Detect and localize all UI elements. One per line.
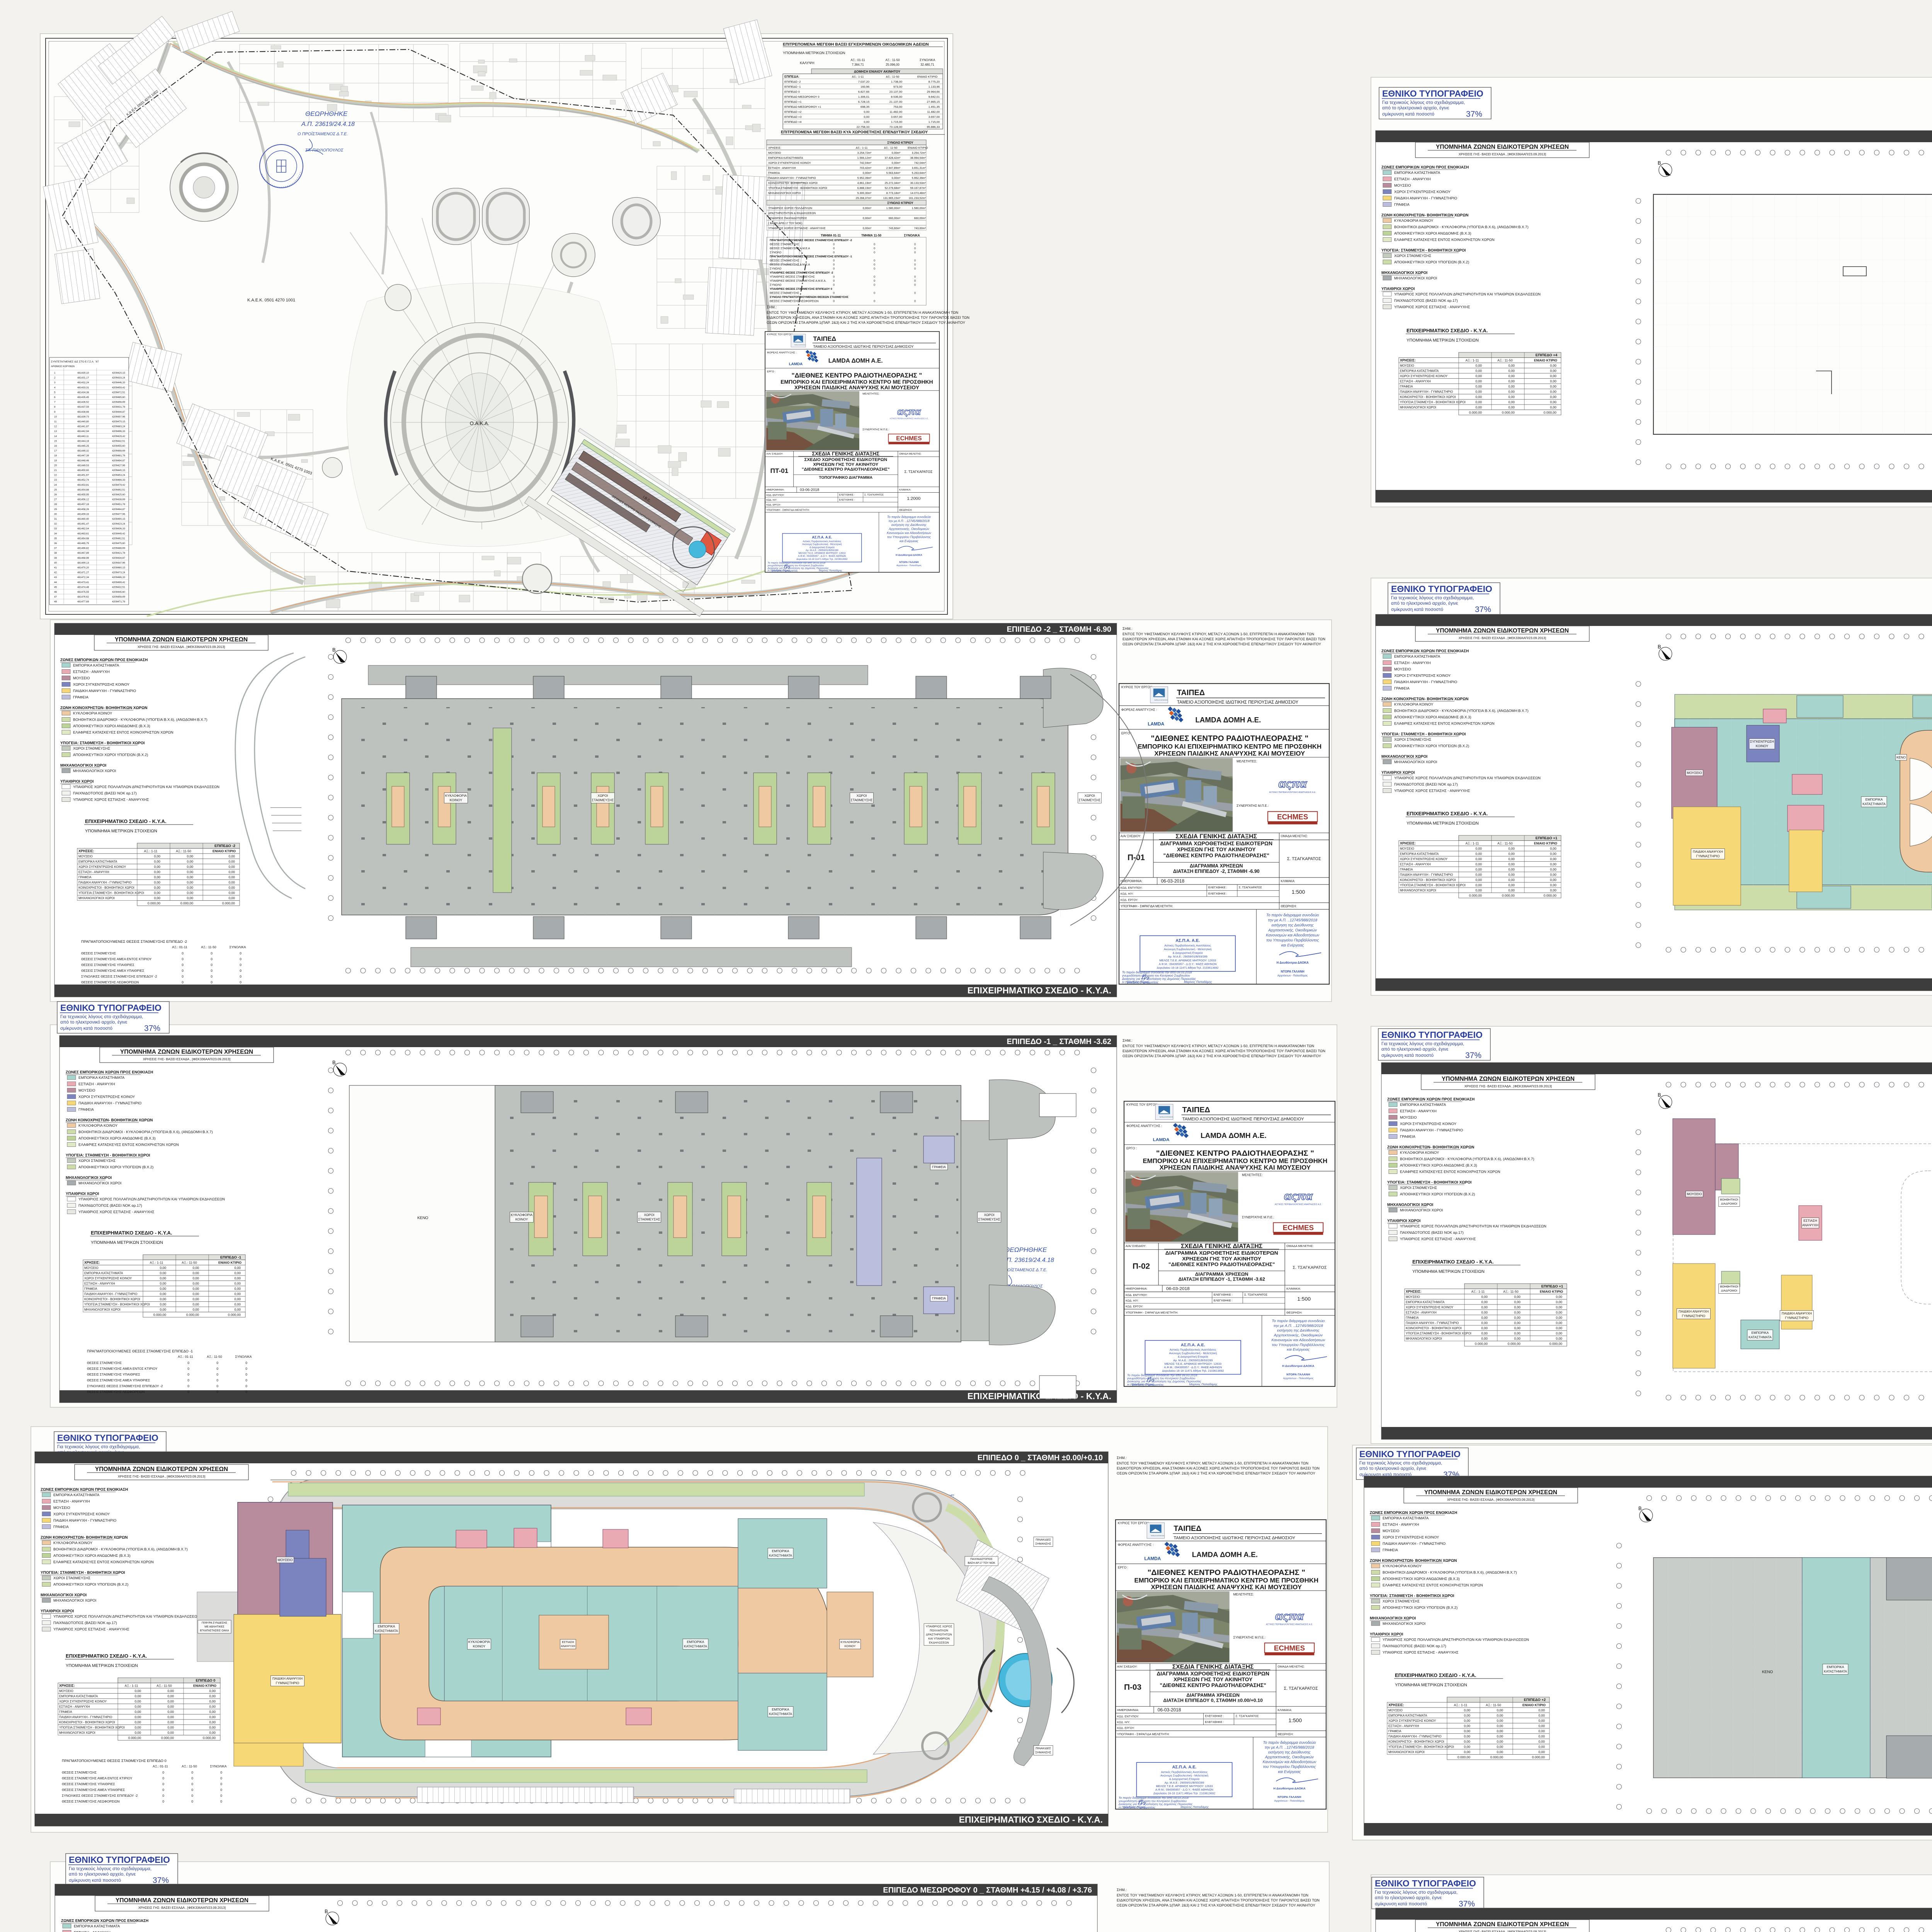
svg-text:ΣΥΝΟΛΙΚΑ: ΣΥΝΟΛΙΚΑ	[230, 945, 246, 949]
svg-text:την με Α.Π. ..12745/988/2018: την με Α.Π. ..12745/988/2018	[1274, 1324, 1323, 1328]
svg-text:ΝΤΟΡΑ ΓΑΛΑΝΗ: ΝΤΟΡΑ ΓΑΛΑΝΗ	[1286, 1373, 1310, 1376]
svg-text:ΑΞ.: 1-11: ΑΞ.: 1-11	[1466, 842, 1479, 845]
svg-text:ΥΠΑΙΘΡΙΟΙ ΧΩΡΟΙ: ΥΠΑΙΘΡΙΟΙ ΧΩΡΟΙ	[60, 780, 94, 784]
svg-text:ΜΟΥΣΕΙΟ: ΜΟΥΣΕΙΟ	[1400, 364, 1414, 367]
svg-text:ΓΡΑΦΕΙΑ: ΓΡΑΦΕΙΑ	[1388, 1730, 1401, 1733]
svg-text:0: 0	[182, 980, 184, 984]
svg-text:ΘΕΣΕΙΣ ΣΤΑΘΜΕΥΣΗΣ ΥΠΑΙΘΡΙΕΣ: ΘΕΣΕΙΣ ΣΤΑΘΜΕΥΣΗΣ ΥΠΑΙΘΡΙΕΣ	[62, 1782, 115, 1786]
svg-text:"ΔΙΕΘΝΕΣ ΚΕΝΤΡΟ ΡΑΔΙΟΤΗΛΕΟΡΑΣΗ: "ΔΙΕΘΝΕΣ ΚΕΝΤΡΟ ΡΑΔΙΟΤΗΛΕΟΡΑΣΗΣ"	[1160, 1682, 1266, 1688]
svg-text:0.000,00: 0.000,00	[1502, 411, 1515, 415]
svg-text:8.773,18m²: 8.773,18m²	[886, 191, 901, 195]
svg-text:ΠΡΑΓΜΑΤΟΠΟΙΟΥΜΕΝΕΣ ΘΕΣΕΙΣ ΣΤΑΘ: ΠΡΑΓΜΑΤΟΠΟΙΟΥΜΕΝΕΣ ΘΕΣΕΙΣ ΣΤΑΘΜΕΥΣΗΣ ΕΠΙ…	[87, 1349, 193, 1354]
svg-text:5.300,30m²: 5.300,30m²	[857, 191, 872, 195]
svg-text:σμίκρυνση κατά ποσοστό: σμίκρυνση κατά ποσοστό	[1381, 1053, 1434, 1058]
svg-text:0.000,00: 0.000,00	[1469, 894, 1482, 898]
svg-text:ΕΜΠΟΡΙΚΑ: ΕΜΠΟΡΙΚΑ	[1827, 1665, 1844, 1669]
svg-text:4209496,33: 4209496,33	[112, 430, 125, 433]
svg-text:ΚΥΚΛΟΦΟΡΙΑ ΚΟΙΝΟΥ: ΚΥΚΛΟΦΟΡΙΑ ΚΟΙΝΟΥ	[78, 1124, 118, 1128]
svg-text:481435,45: 481435,45	[77, 396, 89, 399]
svg-text:0.000,00: 0.000,00	[228, 1313, 241, 1317]
svg-text:ΓΡΑΦΕΙΑ: ΓΡΑΦΕΙΑ	[932, 1165, 946, 1169]
svg-text:481476,62: 481476,62	[77, 596, 89, 599]
svg-text:ΕΠΙΤΡΕΠΟΜΕΝΑ ΜΕΓΕΘΗ ΒΑΣΕΙ ΚΥΑ: ΕΠΙΤΡΕΠΟΜΕΝΑ ΜΕΓΕΘΗ ΒΑΣΕΙ ΚΥΑ ΧΩΡΟΘΕΤΗΣΗ…	[781, 130, 928, 134]
svg-text:Α.Π. 23619/24.4.18: Α.Π. 23619/24.4.18	[1000, 1257, 1054, 1264]
svg-text:4209421,78: 4209421,78	[112, 552, 125, 554]
svg-text:ΧΩΡΟΙ ΣΥΓΚΕΝΤΡΩΣΗΣ ΚΟΙΝΟΥ: ΧΩΡΟΙ ΣΥΓΚΕΝΤΡΩΣΗΣ ΚΟΙΝΟΥ	[78, 865, 126, 869]
svg-text:Σ. ΤΣΑΓΚΑΡΑΤΟΣ: Σ. ΤΣΑΓΚΑΡΑΤΟΣ	[1239, 886, 1262, 889]
svg-text:ΚΥΚΛΟΦΟΡΙΑ: ΚΥΚΛΟΦΟΡΙΑ	[445, 794, 467, 798]
svg-text:ΑΞ.: 11-50: ΑΞ.: 11-50	[1497, 359, 1513, 362]
svg-text:ΕΜΠΟΡΙΚΑ ΚΑΤΑΣΤΗΜΑΤΑ: ΕΜΠΟΡΙΚΑ ΚΑΤΑΣΤΗΜΑΤΑ	[84, 1272, 123, 1275]
svg-text:ΠΑΙΧΝΙΔΟΤΟΠΟΣ (ΒΑΣΕΙ ΝΟΚ αρ.17: ΠΑΙΧΝΙΔΟΤΟΠΟΣ (ΒΑΣΕΙ ΝΟΚ αρ.17)	[73, 791, 137, 796]
svg-text:LAMDA ΔΟΜΗ Α.Ε.: LAMDA ΔΟΜΗ Α.Ε.	[1195, 716, 1261, 724]
svg-text:ΥΠΑΙΘΡΙΟΙ ΧΩΡΟΙ: ΥΠΑΙΘΡΙΟΙ ΧΩΡΟΙ	[41, 1609, 74, 1614]
svg-text:ΚΥΡΙΟΣ ΤΟΥ ΕΡΓΟΥ :: ΚΥΡΙΟΣ ΤΟΥ ΕΡΓΟΥ :	[1126, 1103, 1159, 1107]
svg-text:0,00: 0,00	[167, 1694, 174, 1698]
svg-text:ΚΟΙΝΟΧΡΗΣΤΟΙ - ΒΟΗΘΗΤΙΚΟΙ ΧΩΡΟ: ΚΟΙΝΟΧΡΗΣΤΟΙ - ΒΟΗΘΗΤΙΚΟΙ ΧΩΡΟΙ	[78, 886, 134, 889]
svg-text:37%: 37%	[1466, 110, 1482, 119]
svg-text:ΧΩΡΟΙ: ΧΩΡΟΙ	[984, 1213, 995, 1217]
svg-text:ΓΥΜΝΑΣΤΗΡΙΟ: ΓΥΜΝΑΣΤΗΡΙΟ	[1696, 854, 1720, 858]
svg-text:την με Α.Π. ..12745/988/2018: την με Α.Π. ..12745/988/2018	[1265, 1746, 1314, 1750]
svg-text:ΟΜΑΔΑ ΜΕΛΕΤΗΣ:: ΟΜΑΔΑ ΜΕΛΕΤΗΣ:	[1286, 1244, 1313, 1248]
svg-text:0,00: 0,00	[1475, 374, 1482, 378]
svg-text:481451,67: 481451,67	[77, 474, 89, 477]
svg-text:Α.Π. 23619/24.4.18: Α.Π. 23619/24.4.18	[301, 121, 355, 128]
svg-text:0,00: 0,00	[1550, 857, 1556, 861]
svg-text:ΕΝΙΑΙΟ ΚΤΙΡΙΟ: ΕΝΙΑΙΟ ΚΤΙΡΙΟ	[1534, 842, 1557, 845]
svg-text:ΑΠΟΘΗΚΕΥΤΙΚΟΙ ΧΩΡΟΙ ΑΝΩΔΟΜΗΣ (: ΑΠΟΘΗΚΕΥΤΙΚΟΙ ΧΩΡΟΙ ΑΝΩΔΟΜΗΣ (Β.Χ.3)	[73, 724, 150, 728]
svg-text:0: 0	[191, 1770, 193, 1774]
svg-text:0: 0	[874, 267, 875, 270]
svg-text:0,00: 0,00	[1550, 379, 1556, 383]
svg-text:0: 0	[914, 251, 916, 254]
svg-text:ΜΗΧΑΝΟΛΟΓΙΚΟΙ ΧΩΡΟΙ: ΜΗΧΑΝΟΛΟΓΙΚΟΙ ΧΩΡΟΙ	[1406, 1337, 1442, 1340]
svg-text:και Ενέργειας: και Ενέργειας	[900, 539, 918, 543]
svg-text:ΑΣ.Π.Α. Α.Ε.: ΑΣ.Π.Α. Α.Ε.	[1181, 1343, 1205, 1347]
svg-text:27: 27	[54, 498, 57, 501]
svg-text:ΕΜΠΟΡΙΚΑ ΚΑΤΑΣΤΗΜΑΤΑ: ΕΜΠΟΡΙΚΑ ΚΑΤΑΣΤΗΜΑΤΑ	[1394, 655, 1440, 659]
svg-text:ΜΟΥΣΕΙΟ: ΜΟΥΣΕΙΟ	[78, 1088, 95, 1093]
svg-text:ΕΜΠΟΡΙΚΟ ΚΑΙ ΕΠΙΧΕΙΡΗΜΑΤΙΚΟ ΚΕ: ΕΜΠΟΡΙΚΟ ΚΑΙ ΕΠΙΧΕΙΡΗΜΑΤΙΚΟ ΚΕΝΤΡΟ ΜΕ ΠΡ…	[1134, 1577, 1319, 1584]
svg-text:0,00: 0,00	[1475, 867, 1482, 871]
svg-text:ΚΥΚΛΟΦΟΡΙΑ: ΚΥΚΛΟΦΟΡΙΑ	[468, 1640, 490, 1644]
svg-text:ΧΡΗΣΕΙΣ ΓΗΣ- ΒΑΣΕΙ ΕΣΧΑΔΑ , [Φ: ΧΡΗΣΕΙΣ ΓΗΣ- ΒΑΣΕΙ ΕΣΧΑΔΑ , [ΦΕΚ336ΑΑΠ/2…	[1464, 1084, 1552, 1088]
svg-text:481461,47: 481461,47	[77, 523, 89, 526]
svg-text:0,00: 0,00	[1508, 395, 1515, 399]
svg-text:ΜΟΥΣΕΙΟ: ΜΟΥΣΕΙΟ	[1394, 667, 1411, 672]
svg-text:ΜΟΥΣΕΙΟ: ΜΟΥΣΕΙΟ	[1687, 771, 1702, 775]
svg-text:ΚΟΙΝΟΧΡΗΣΤΟΙ - ΒΟΗΘΗΤΙΚΟΙ ΧΩΡΟ: ΚΟΙΝΟΧΡΗΣΤΟΙ - ΒΟΗΘΗΤΙΚΟΙ ΧΩΡΟΙ	[1406, 1327, 1462, 1330]
svg-text:481467,89: 481467,89	[77, 552, 89, 554]
svg-text:ΚΥΚΛΟΦΟΡΙΑ: ΚΥΚΛΟΦΟΡΙΑ	[511, 1213, 533, 1217]
svg-text:ΜΟΥΣΕΙΟ: ΜΟΥΣΕΙΟ	[73, 676, 90, 680]
svg-text:ΕΛΕΓΧΘΗΚΕ :: ΕΛΕΓΧΘΗΚΕ :	[839, 498, 855, 501]
svg-text:ΕΝΙΑΙΟ ΚΤΙΡΙΟ: ΕΝΙΑΙΟ ΚΤΙΡΙΟ	[218, 1261, 241, 1265]
svg-text:0,00: 0,00	[192, 1282, 199, 1286]
svg-text:ΚΛΙΜΑΚΑ:: ΚΛΙΜΑΚΑ:	[1277, 1708, 1292, 1712]
svg-text:0,00: 0,00	[1508, 862, 1515, 866]
svg-text:ΕΠΙΧΕΙΡΗΜΑΤΙΚΟ ΣΧΕΔΙΟ - Κ.Υ.Α.: ΕΠΙΧΕΙΡΗΜΑΤΙΚΟ ΣΧΕΔΙΟ - Κ.Υ.Α.	[959, 1815, 1103, 1825]
svg-text:ΜΗΧΑΝΟΛΟΓΙΚΟΙ ΧΩΡΟΙ: ΜΗΧΑΝΟΛΟΓΙΚΟΙ ΧΩΡΟΙ	[1387, 1203, 1433, 1207]
svg-text:0,00: 0,00	[134, 1726, 141, 1730]
svg-text:ΜΗΧΑΝΟΛΟΓΙΚΟΙ ΧΩΡΟΙ: ΜΗΧΑΝΟΛΟΓΙΚΟΙ ΧΩΡΟΙ	[60, 764, 106, 768]
svg-text:481452,74: 481452,74	[77, 479, 89, 481]
svg-text:ΜΗΧΑΝΟΛΟΓΙΚΟΙ ΧΩΡΟΙ: ΜΗΧΑΝΟΛΟΓΙΚΟΙ ΧΩΡΟΙ	[1400, 406, 1436, 409]
svg-text:25: 25	[54, 488, 57, 491]
svg-text:ΕΙΔΙΚΟΤΕΡΩΝ ΧΡΗΣΕΩΝ, ΑΝΑ ΣΤΑΘΜ: ΕΙΔΙΚΟΤΕΡΩΝ ΧΡΗΣΕΩΝ, ΑΝΑ ΣΤΑΘΜΗ ΚΑΙ ΑΞΟΝ…	[1117, 1898, 1320, 1903]
svg-text:Αρ. Μ.Α.Ε.: 29059/01/Β/93/289: Αρ. Μ.Α.Ε.: 29059/01/Β/93/289	[1165, 1781, 1204, 1784]
svg-text:ΥΠΑΙΘΡΙΟΣ ΠΑΙΧΝΙΔΟΤΟΠΟΣ: ΥΠΑΙΘΡΙΟΣ ΠΑΙΧΝΙΔΟΤΟΠΟΣ	[768, 216, 807, 220]
svg-text:ΝΤΟΡΑ ΓΑΛΑΝΗ: ΝΤΟΡΑ ΓΑΛΑΝΗ	[1277, 1795, 1301, 1799]
svg-text:0,00: 0,00	[1550, 847, 1556, 850]
svg-text:4209457,96: 4209457,96	[112, 415, 125, 418]
svg-text:ΑΠΟΘΗΚΕΥΤΙΚΟΙ ΧΩΡΟΙ ΥΠΟΓΕΙΩΝ (: ΑΠΟΘΗΚΕΥΤΙΚΟΙ ΧΩΡΟΙ ΥΠΟΓΕΙΩΝ (Β.Χ.2)	[1400, 1192, 1475, 1197]
svg-text:ΠΑΙΔΙΚΗ ΑΝΑΨΥΧΗ - ΓΥΜΝΑΣΤΗΡΙΟ: ΠΑΙΔΙΚΗ ΑΝΑΨΥΧΗ - ΓΥΜΝΑΣΤΗΡΙΟ	[78, 881, 131, 884]
svg-text:0,00m²: 0,00m²	[863, 206, 872, 210]
svg-text:ΟΜΑΔΑ ΜΕΛΕΤΗΣ:: ΟΜΑΔΑ ΜΕΛΕΤΗΣ:	[899, 452, 922, 455]
svg-text:0: 0	[874, 263, 875, 266]
svg-text:4209453,24: 4209453,24	[112, 474, 125, 477]
svg-text:ΥΠΟΓΕΙΑ:ΣΤΑΘΜΕΥΣΗ - ΒΟΗΘΗΤΙΚΟΙ: ΥΠΟΓΕΙΑ:ΣΤΑΘΜΕΥΣΗ - ΒΟΗΘΗΤΙΚΟΙ ΧΩΡΟΙ	[1388, 1745, 1454, 1749]
svg-text:0: 0	[162, 1770, 164, 1774]
svg-text:ΧΡΗΣΕΩΝ ΓΗΣ ΤΟΥ ΑΚΙΝΗΤΟΥ: ΧΡΗΣΕΩΝ ΓΗΣ ΤΟΥ ΑΚΙΝΗΤΟΥ	[1173, 1677, 1252, 1682]
svg-text:0: 0	[833, 263, 835, 266]
svg-text:ΣΤΑΘΜΕΥΣΗΣ: ΣΤΑΘΜΕΥΣΗΣ	[638, 1218, 660, 1221]
svg-text:Μαρίνος Παπαδάμης: Μαρίνος Παπαδάμης	[1189, 1383, 1218, 1386]
svg-text:ΜΗΧΑΝΟΛΟΓΙΚΟΙ ΧΩΡΟΙ: ΜΗΧΑΝΟΛΟΓΙΚΟΙ ΧΩΡΟΙ	[1388, 1750, 1425, 1754]
svg-text:0,00: 0,00	[1538, 1708, 1545, 1712]
svg-text:ΑΞ.: 1-11: ΑΞ.: 1-11	[852, 75, 864, 78]
svg-text:0: 0	[833, 279, 835, 282]
svg-text:Μαρίνος Παπαδάμης: Μαρίνος Παπαδάμης	[1184, 980, 1212, 984]
svg-text:0,00: 0,00	[192, 1271, 199, 1275]
svg-text:ΕΜΠΟΡΙΚΟ ΚΑΙ ΕΠΙΧΕΙΡΗΜΑΤΙΚΟ ΚΕ: ΕΜΠΟΡΙΚΟ ΚΑΙ ΕΠΙΧΕΙΡΗΜΑΤΙΚΟ ΚΕΝΤΡΟ ΜΕ ΠΡ…	[1138, 743, 1321, 750]
svg-text:4209436,33: 4209436,33	[112, 527, 125, 530]
svg-text:ΚΩΔ. ΕΝΤΥΠΟΥ:: ΚΩΔ. ΕΝΤΥΠΟΥ:	[1117, 1714, 1139, 1718]
svg-text:0: 0	[187, 1367, 189, 1371]
svg-text:0: 0	[211, 951, 213, 955]
svg-text:9: 9	[54, 411, 56, 413]
svg-text:ΥΠΑΙΘΡΙΟΣ ΧΩΡΟΣ ΠΟΛΛΑΠΛΩΝ: ΥΠΑΙΘΡΙΟΣ ΧΩΡΟΣ ΠΟΛΛΑΠΛΩΝ	[768, 206, 812, 210]
svg-text:1.133,96: 1.133,96	[929, 85, 940, 88]
svg-text:σμίκρυνση κατά ποσοστό: σμίκρυνση κατά ποσοστό	[60, 1026, 112, 1031]
svg-text:Αρχιτεκτονικής, Οικοδομικών: Αρχιτεκτονικής, Οικοδομικών	[1265, 1755, 1314, 1760]
svg-text:ΕΠΙΠΕΔΟ -2: ΕΠΙΠΕΔΟ -2	[214, 844, 235, 848]
svg-text:ΑΞ.: 11-50: ΑΞ.: 11-50	[182, 1764, 197, 1768]
svg-text:5.263,64m²: 5.263,64m²	[912, 171, 926, 175]
svg-text:ΣΥΝΟΛΟ: ΣΥΝΟΛΟ	[770, 251, 782, 254]
svg-text:ΚΥΚΛΟΦΟΡΙΑ ΚΟΙΝΟΥ: ΚΥΚΛΟΦΟΡΙΑ ΚΟΙΝΟΥ	[73, 711, 112, 716]
svg-text:ΚΩΔ. Η/Υ:: ΚΩΔ. Η/Υ:	[1121, 892, 1133, 896]
svg-text:0,00: 0,00	[1550, 867, 1556, 871]
svg-text:ΜΗΧΑΝΟΛΟΓΙΚΟΙ ΧΩΡΟΙ: ΜΗΧΑΝΟΛΟΓΙΚΟΙ ΧΩΡΟΙ	[1381, 271, 1427, 275]
svg-text:4209486,33: 4209486,33	[112, 576, 125, 579]
svg-text:0,00: 0,00	[1508, 873, 1515, 877]
svg-text:481468,96: 481468,96	[77, 557, 89, 560]
svg-text:31: 31	[54, 518, 57, 520]
svg-text:ΧΩΡΟΙ ΣΤΑΘΜΕΥΣΗΣ: ΧΩΡΟΙ ΣΤΑΘΜΕΥΣΗΣ	[78, 1159, 116, 1163]
svg-text:ΑΠΟΘΗΚΕΥΤΙΚΟΙ ΧΩΡΟΙ ΥΠΟΓΕΙΩΝ (: ΑΠΟΘΗΚΕΥΤΙΚΟΙ ΧΩΡΟΙ ΥΠΟΓΕΙΩΝ (Β.Χ.2)	[1394, 744, 1469, 748]
svg-text:0: 0	[874, 275, 875, 279]
svg-text:ΤΑΜΕΙΟ ΑΞΙΟΠΟΙΗΣΗΣ ΙΔΙΩΤΙΚΗΣ Π: ΤΑΜΕΙΟ ΑΞΙΟΠΟΙΗΣΗΣ ΙΔΙΩΤΙΚΗΣ ΠΕΡΙΟΥΣΙΑΣ …	[1177, 700, 1298, 705]
svg-text:0,00: 0,00	[1508, 369, 1515, 373]
svg-text:Κανονισμών και Αδειοδοτήσεων: Κανονισμών και Αδειοδοτήσεων	[1263, 1760, 1316, 1764]
svg-text:23: 23	[54, 479, 57, 481]
svg-text:15: 15	[54, 440, 57, 442]
svg-text:481439,73: 481439,73	[77, 415, 89, 418]
svg-text:8.775,20: 8.775,20	[929, 80, 940, 83]
svg-text:ΥΠΑΙΘΡΙΕΣ ΘΕΣΕΙΣ ΣΤΑΘΜΕΥΣΗΣ ΕΠ: ΥΠΑΙΘΡΙΕΣ ΘΕΣΕΙΣ ΣΤΑΘΜΕΥΣΗΣ ΕΠΙΠΕΔΟΥ 0	[770, 287, 832, 291]
svg-text:ΣΥΝΟΛΙΚΕΣ ΘΕΣΕΙΣ ΣΤΑΘΜΕΥΣΗΣ ΕΠ: ΣΥΝΟΛΙΚΕΣ ΘΕΣΕΙΣ ΣΤΑΘΜΕΥΣΗΣ ΕΠΙΠΕΔΟΥ -2	[87, 1384, 163, 1388]
svg-text:ΕΛΑΦΡΙΕΣ ΚΑΤΑΣΚΕΥΕΣ ΕΝΤΟΣ ΚΟΙΝ: ΕΛΑΦΡΙΕΣ ΚΑΤΑΣΚΕΥΕΣ ΕΝΤΟΣ ΚΟΙΝΟΧΡΗΣΤΩΝ Χ…	[53, 1560, 154, 1565]
svg-text:ΜΗΧΑΝΟΛΟΓΙΚΟΙ ΧΩΡΟΙ: ΜΗΧΑΝΟΛΟΓΙΚΟΙ ΧΩΡΟΙ	[768, 191, 801, 195]
svg-text:1.306,01: 1.306,01	[858, 95, 869, 99]
svg-text:0: 0	[874, 247, 875, 250]
svg-text:ΜΟΥΣΕΙΟ: ΜΟΥΣΕΙΟ	[1400, 847, 1414, 850]
svg-text:ΘΕΩΡΗΣΗ:: ΘΕΩΡΗΣΗ:	[1281, 905, 1297, 908]
svg-text:0,00: 0,00	[1508, 883, 1515, 887]
svg-text:ΑΝΑΨΥΧΗ: ΑΝΑΨΥΧΗ	[1802, 1223, 1818, 1227]
svg-text:0,00: 0,00	[209, 1726, 216, 1730]
svg-text:ΑΠΟΘΗΚΕΥΤΙΚΟΙ ΧΩΡΟΙ ΑΝΩΔΟΜΗΣ (: ΑΠΟΘΗΚΕΥΤΙΚΟΙ ΧΩΡΟΙ ΑΝΩΔΟΜΗΣ (Β.Χ.3)	[1400, 1163, 1477, 1168]
svg-text:21.137,00: 21.137,00	[889, 100, 902, 104]
svg-text:από το ηλεκτρονικό αρχείο, έγι: από το ηλεκτρονικό αρχείο, έγινε	[1382, 105, 1449, 111]
svg-text:ΠΑΙΔΙΚΗ ΑΝΑΨΥΧΗ - ΓΥΜΝΑΣΤΗΡΙΟ: ΠΑΙΔΙΚΗ ΑΝΑΨΥΧΗ - ΓΥΜΝΑΣΤΗΡΙΟ	[84, 1293, 137, 1296]
svg-text:ΠΑΙΔΙΚΗ ΑΝΑΨΥΧΗ: ΠΑΙΔΙΚΗ ΑΝΑΨΥΧΗ	[1679, 1310, 1709, 1313]
svg-text:Η Διευθύντρια ΔΑΟΚΑ: Η Διευθύντρια ΔΑΟΚΑ	[1273, 1787, 1306, 1790]
svg-text:0: 0	[220, 1788, 222, 1792]
svg-text:ΚΩΔ. ΕΡΓΟΥ:: ΚΩΔ. ΕΡΓΟΥ:	[766, 503, 781, 506]
svg-text:0: 0	[187, 1378, 189, 1382]
svg-text:52.279,68m²: 52.279,68m²	[885, 186, 901, 190]
svg-text:ΧΡΗΣΕΙΣ:: ΧΡΗΣΕΙΣ:	[1406, 1290, 1422, 1294]
svg-text:5.952,39m²: 5.952,39m²	[857, 176, 872, 180]
svg-text:0,00: 0,00	[192, 1297, 199, 1301]
svg-text:4209440,15: 4209440,15	[112, 469, 125, 472]
svg-text:ΕΜΠΟΡΙΚΑ: ΕΜΠΟΡΙΚΑ	[1752, 1331, 1769, 1335]
svg-text:ΘΕΣΕΙΣ ΣΤΑΘΜΕΥΣΗΣ ΑΜΕΑ ΥΠΑΙΘΡΙ: ΘΕΣΕΙΣ ΣΤΑΘΜΕΥΣΗΣ ΑΜΕΑ ΥΠΑΙΘΡΙΕΣ	[81, 969, 144, 973]
svg-text:Σ. ΤΣΑΓΚΑΡΑΤΟΣ: Σ. ΤΣΑΓΚΑΡΑΤΟΣ	[864, 494, 884, 497]
svg-text:481455,95: 481455,95	[77, 493, 89, 496]
svg-text:481437,59: 481437,59	[77, 406, 89, 408]
svg-text:ΖΩΝΗ ΚΟΙΝΟΧΡΗΣΤΩΝ- ΒΟΗΘΗΤΙΚΩΝ: ΖΩΝΗ ΚΟΙΝΟΧΡΗΣΤΩΝ- ΒΟΗΘΗΤΙΚΩΝ ΧΩΡΩΝ	[1370, 1559, 1457, 1563]
svg-text:ΕΜΠΟΡΙΚΑ: ΕΜΠΟΡΙΚΑ	[687, 1640, 704, 1644]
svg-text:ΜΟΥΣΕΙΟ: ΜΟΥΣΕΙΟ	[1687, 1192, 1702, 1196]
svg-text:ΥΠΑΙΘΡΙΟΣ ΧΩΡΟΣ ΕΣΤΙΑΣΗΣ - ΑΝΑ: ΥΠΑΙΘΡΙΟΣ ΧΩΡΟΣ ΕΣΤΙΑΣΗΣ - ΑΝΑΨΥΧΗΣ	[1400, 1237, 1476, 1242]
svg-text:0.000,00: 0.000,00	[1544, 894, 1556, 898]
svg-text:ΒΟΗΘΗΤΙΚΟΙ ΔΙΑΔΡΟΜΟΙ - ΚΥΚΛΟΦΟ: ΒΟΗΘΗΤΙΚΟΙ ΔΙΑΔΡΟΜΟΙ - ΚΥΚΛΟΦΟΡΙΑ (ΥΠΟΓΕ…	[1383, 1571, 1517, 1575]
svg-text:0,00: 0,00	[209, 1694, 216, 1698]
svg-text:ΠΙΝΑΚΙΔΕΣ: ΠΙΝΑΚΙΔΕΣ	[1036, 1538, 1051, 1541]
svg-text:ΜΕ ΑΘΛΗΤΙΚΕΣ: ΜΕ ΑΘΛΗΤΙΚΕΣ	[204, 1626, 224, 1628]
svg-text:ΕΙΔΙΚΟΤΕΡΩΝ ΧΡΗΣΕΩΝ, ΑΝΑ ΣΤΑΘΜ: ΕΙΔΙΚΟΤΕΡΩΝ ΧΡΗΣΕΩΝ, ΑΝΑ ΣΤΑΘΜΗ ΚΑΙ ΑΞΟΝ…	[1117, 1466, 1320, 1471]
svg-text:ΘΕΣΕΙΣ ΣΤΑΘΜΕΥΣΗΣ ΑΜΕΑ ΥΠΑΙΘΡΙ: ΘΕΣΕΙΣ ΣΤΑΘΜΕΥΣΗΣ ΑΜΕΑ ΥΠΑΙΘΡΙΕΣ	[62, 1788, 125, 1792]
svg-text:6.827,66: 6.827,66	[858, 90, 869, 94]
svg-text:0,00: 0,00	[154, 891, 160, 895]
svg-text:0,00: 0,00	[209, 1731, 216, 1735]
svg-text:ΣΤΑΘΜΕΥΣΗΣ: ΣΤΑΘΜΕΥΣΗΣ	[978, 1218, 1000, 1221]
svg-text:0,00: 0,00	[1464, 1714, 1470, 1718]
svg-text:481454,88: 481454,88	[77, 488, 89, 491]
svg-text:0,00: 0,00	[192, 1276, 199, 1280]
svg-text:0,00: 0,00	[1550, 374, 1556, 378]
svg-text:ΜΟΥΣΕΙΟ: ΜΟΥΣΕΙΟ	[59, 1689, 73, 1693]
svg-text:43: 43	[54, 576, 57, 579]
svg-text:ΕΛΕΓΧΘΗΚΕ :: ΕΛΕΓΧΘΗΚΕ :	[1205, 1720, 1224, 1724]
svg-text:ΗΜΕΡΟΜΗΝΙΑ:: ΗΜΕΡΟΜΗΝΙΑ:	[1117, 1708, 1139, 1712]
svg-text:ΒΟΗΘΗΤΙΚΟΙ: ΒΟΗΘΗΤΙΚΟΙ	[1720, 1285, 1738, 1288]
svg-text:ΕΠΙΠΕΔΟ -2: ΕΠΙΠΕΔΟ -2	[784, 80, 801, 83]
svg-text:95.886,33: 95.886,33	[927, 125, 940, 129]
svg-text:ΘΕΣΕΙΣ ΣΤΑΘΜΕΥΣΗΣ Α.Μ.Ε.Α: ΘΕΣΕΙΣ ΣΤΑΘΜΕΥΣΗΣ Α.Μ.Ε.Α	[770, 247, 810, 250]
svg-text:0,00: 0,00	[1481, 1326, 1488, 1330]
svg-text:37%: 37%	[1459, 1900, 1475, 1908]
svg-text:σμίκρυνση κατά ποσοστό: σμίκρυνση κατά ποσοστό	[1375, 1901, 1427, 1906]
svg-text:4209455,60: 4209455,60	[112, 445, 125, 447]
svg-text:4209481,78: 4209481,78	[112, 454, 125, 457]
svg-text:ΚΩΔ. ΕΡΓΟΥ:: ΚΩΔ. ΕΡΓΟΥ:	[1117, 1726, 1135, 1730]
svg-text:ΥΠΟΓΕΙΑ: ΣΤΑΘΜΕΥΣΗ - ΒΟΗΘΗΤΙΚΟ: ΥΠΟΓΕΙΑ: ΣΤΑΘΜΕΥΣΗ - ΒΟΗΘΗΤΙΚΟΙ ΧΩΡΟΙ	[1381, 248, 1466, 253]
svg-text:0: 0	[220, 1776, 222, 1780]
svg-text:ΔΙΑΤΑΞΗ ΕΠΙΠΕΔΟΥ -1, ΣΤΑΘΜΗ -3: ΔΙΑΤΑΞΗ ΕΠΙΠΕΔΟΥ -1, ΣΤΑΘΜΗ -3.62	[1178, 1277, 1265, 1282]
svg-text:ΑΠΟΘΗΚΕΥΤΙΚΟΙ ΧΩΡΟΙ ΑΝΩΔΟΜΗΣ (: ΑΠΟΘΗΚΕΥΤΙΚΟΙ ΧΩΡΟΙ ΑΝΩΔΟΜΗΣ (Β.Χ.3)	[1394, 231, 1471, 236]
svg-text:0.000,00: 0.000,00	[1508, 1342, 1520, 1346]
svg-text:ΚΥΚΛΟΦΟΡΙΑ ΚΟΙΝΟΥ: ΚΥΚΛΟΦΟΡΙΑ ΚΟΙΝΟΥ	[1383, 1564, 1422, 1568]
svg-text:ΑΠΟΘΗΚΕΥΤΙΚΟΙ ΧΩΡΟΙ ΥΠΟΓΕΙΩΝ (: ΑΠΟΘΗΚΕΥΤΙΚΟΙ ΧΩΡΟΙ ΥΠΟΓΕΙΩΝ (Β.Χ.2)	[78, 1165, 153, 1170]
svg-text:742,04m²: 742,04m²	[914, 161, 926, 165]
svg-text:0: 0	[874, 291, 875, 295]
svg-text:Η Διευθύντρια ΔΑΟΚΑ: Η Διευθύντρια ΔΑΟΚΑ	[896, 554, 922, 556]
svg-text:ΧΩΡΟΙ ΣΤΑΘΜΕΥΣΗΣ: ΧΩΡΟΙ ΣΤΑΘΜΕΥΣΗΣ	[1400, 1186, 1437, 1190]
svg-text:ΑΞ.: 11-50: ΑΞ.: 11-50	[1503, 1290, 1519, 1294]
svg-text:0: 0	[162, 1776, 164, 1780]
svg-text:ΧΡΗΣΕΙΣ ΓΗΣ- ΒΑΣΕΙ ΕΣΧΑΔΑ , [Φ: ΧΡΗΣΕΙΣ ΓΗΣ- ΒΑΣΕΙ ΕΣΧΑΔΑ , [ΦΕΚ336ΑΑΠ/2…	[1459, 1930, 1546, 1932]
svg-text:ΕΛΕΓΧΘΗΚΕ :: ΕΛΕΓΧΘΗΚΕ :	[1208, 892, 1227, 895]
svg-text:ΧΡΗΣΕΙΣ:: ΧΡΗΣΕΙΣ:	[78, 849, 94, 853]
svg-text:ΥΠΑΙΘΡΙΟΣ ΧΩΡΟΣ ΕΣΤΙΑΣΗΣ - ΑΝΑ: ΥΠΑΙΘΡΙΟΣ ΧΩΡΟΣ ΕΣΤΙΑΣΗΣ - ΑΝΑΨΥΧΗΣ	[1394, 305, 1470, 310]
svg-text:0: 0	[240, 980, 241, 984]
svg-text:0: 0	[211, 980, 213, 984]
svg-text:32.480,71: 32.480,71	[920, 63, 934, 66]
svg-text:0: 0	[914, 299, 916, 303]
svg-text:ΔΟΜΗΣΗ ΕΝΙΑΙΟΥ ΑΚΙΝΗΤΟΥ: ΔΟΜΗΣΗ ΕΝΙΑΙΟΥ ΑΚΙΝΗΤΟΥ	[854, 70, 900, 73]
svg-text:0: 0	[211, 969, 213, 973]
svg-text:ΚΟΙΝΟΧΡΗΣΤΟΙ - ΒΟΗΘΗΤΙΚΟΙ ΧΩΡΟ: ΚΟΙΝΟΧΡΗΣΤΟΙ - ΒΟΗΘΗΤΙΚΟΙ ΧΩΡΟΙ	[84, 1298, 140, 1301]
svg-text:ΚΩΔ. ΕΝΤΥΠΟΥ:: ΚΩΔ. ΕΝΤΥΠΟΥ:	[766, 494, 784, 497]
svg-text:47: 47	[54, 596, 57, 599]
svg-text:ΣΧΕΔΙΟ ΧΩΡΟΘΕΤΗΣΗΣ ΕΙΔΙΚΟΤΕΡΩΝ: ΣΧΕΔΙΟ ΧΩΡΟΘΕΤΗΣΗΣ ΕΙΔΙΚΟΤΕΡΩΝ	[804, 457, 887, 462]
svg-text:0,00m²: 0,00m²	[863, 216, 872, 220]
svg-text:0,00: 0,00	[234, 1308, 241, 1311]
svg-text:ΕΜΠΟΡΙΚΑ ΚΑΤΑΣΤΗΜΑΤΑ: ΕΜΠΟΡΙΚΑ ΚΑΤΑΣΤΗΜΑΤΑ	[1400, 1103, 1446, 1107]
svg-text:ΑΡΙΘΜΟΣ ΚΟΡΥΦΩΝ: ΑΡΙΘΜΟΣ ΚΟΡΥΦΩΝ	[51, 365, 75, 368]
svg-text:0: 0	[211, 975, 213, 978]
svg-text:ΜΗΧΑΝΟΛΟΓΙΚΟΙ ΧΩΡΟΙ: ΜΗΧΑΝΟΛΟΓΙΚΟΙ ΧΩΡΟΙ	[66, 1176, 112, 1180]
svg-text:0: 0	[245, 1384, 247, 1388]
svg-text:ΜΗΧΑΝΟΛΟΓΙΚΟΙ ΧΩΡΟΙ: ΜΗΧΑΝΟΛΟΓΙΚΟΙ ΧΩΡΟΙ	[73, 769, 116, 773]
svg-text:4209473,24: 4209473,24	[112, 571, 125, 574]
svg-text:0,00: 0,00	[234, 1282, 241, 1286]
svg-text:0,00: 0,00	[1475, 852, 1482, 856]
svg-text:0,00: 0,00	[1508, 400, 1515, 404]
svg-text:ΧΩΡΟΙ: ΧΩΡΟΙ	[1085, 794, 1095, 798]
svg-text:Ανώνυμη Συμβουλευτική - Μελετη: Ανώνυμη Συμβουλευτική - Μελετητική	[1164, 947, 1212, 951]
svg-text:4209468,69: 4209468,69	[112, 450, 125, 452]
svg-text:0,00: 0,00	[1508, 405, 1515, 409]
svg-text:0.000,00: 0.000,00	[222, 901, 235, 905]
svg-text:ΜΟΥΣΕΙΟ: ΜΟΥΣΕΙΟ	[84, 1266, 99, 1270]
svg-text:ΕΣΤΙΑΣΗ - ΑΝΑΨΥΧΗ: ΕΣΤΙΑΣΗ - ΑΝΑΨΥΧΗ	[1400, 1109, 1437, 1114]
svg-text:0: 0	[914, 283, 916, 287]
svg-text:Α/Α/ ΣΧΕΔΙΟΥ:: Α/Α/ ΣΧΕΔΙΟΥ:	[1126, 1244, 1146, 1248]
svg-text:0,00: 0,00	[167, 1731, 174, 1735]
svg-text:13: 13	[54, 430, 57, 433]
svg-text:ΕΣΤΙΑΣΗ - ΑΝΑΨΥΧΗ: ΕΣΤΙΑΣΗ - ΑΝΑΨΥΧΗ	[84, 1282, 115, 1286]
svg-text:ΘΕΣΕΙΣ ΣΤΑΘΜΕΥΣΗΣ: ΘΕΣΕΙΣ ΣΤΑΘΜΕΥΣΗΣ	[770, 291, 799, 295]
svg-text:ΕΠΙΠΕΔΟ -2 _ ΣΤΑΘΜΗ -6.90: ΕΠΙΠΕΔΟ -2 _ ΣΤΑΘΜΗ -6.90	[1007, 625, 1111, 634]
svg-text:0: 0	[914, 267, 916, 270]
svg-text:0,00: 0,00	[1475, 390, 1482, 394]
svg-text:ΧΩΡΟΙ ΣΥΓΚΕΝΤΡΩΣΗΣ ΚΟΙΝΟΥ: ΧΩΡΟΙ ΣΥΓΚΕΝΤΡΩΣΗΣ ΚΟΙΝΟΥ	[1394, 190, 1451, 194]
svg-text:Για τεχνικούς λόγους στο σχεδι: Για τεχνικούς λόγους στο σχεδιάγραμμα,	[60, 1014, 143, 1019]
svg-text:ΕΣΤΙΑΣΗ - ΑΝΑΨΥΧΗ: ΕΣΤΙΑΣΗ - ΑΝΑΨΥΧΗ	[1394, 661, 1431, 665]
svg-text:ΧΩΡΟΙ ΣΥΓΚΕΝΤΡΩΣΗΣ ΚΟΙΝΟΥ: ΧΩΡΟΙ ΣΥΓΚΕΝΤΡΩΣΗΣ ΚΟΙΝΟΥ	[1400, 857, 1448, 861]
svg-text:αςπα: αςπα	[1278, 777, 1307, 790]
svg-text:ΑΣ.Π.Α. Α.Ε.: ΑΣ.Π.Α. Α.Ε.	[812, 535, 832, 539]
svg-text:0,00: 0,00	[228, 860, 235, 864]
svg-text:0,00: 0,00	[1508, 852, 1515, 856]
svg-text:481470,20: 481470,20	[77, 566, 89, 569]
svg-text:ΖΩΝΗ ΚΟΙΝΟΧΡΗΣΤΩΝ- ΒΟΗΘΗΤΙΚΩΝ: ΖΩΝΗ ΚΟΙΝΟΧΡΗΣΤΩΝ- ΒΟΗΘΗΤΙΚΩΝ ΧΩΡΩΝ	[1387, 1145, 1474, 1150]
svg-text:Για τεχνικούς λόγους στο σχεδι: Για τεχνικούς λόγους στο σχεδιάγραμμα,	[1382, 100, 1465, 105]
svg-text:0,00: 0,00	[209, 1710, 216, 1714]
svg-text:Για τεχνικούς λόγους στο σχεδι: Για τεχνικούς λόγους στο σχεδιάγραμμα,	[1375, 1889, 1458, 1895]
svg-text:0,00: 0,00	[1550, 878, 1556, 882]
svg-text:ΠΑΙΔΙΚΗ ΑΝΑΨΥΧΗ: ΠΑΙΔΙΚΗ ΑΝΑΨΥΧΗ	[272, 1677, 303, 1680]
svg-text:0,00: 0,00	[1556, 1332, 1562, 1335]
svg-text:481444,18: 481444,18	[77, 440, 89, 442]
svg-text:2: 2	[54, 377, 56, 379]
svg-text:αςπα: αςπα	[897, 407, 921, 417]
svg-text:0,00: 0,00	[160, 1271, 166, 1275]
svg-text:0,00: 0,00	[1497, 1740, 1503, 1743]
svg-text:0.000,00: 0.000,00	[148, 901, 160, 905]
svg-text:ΘΕΣΕΙΣ ΣΤΑΘΜΕΥΣΗΣ ΛΕΩΦΟΡΕΙΩΝ: ΘΕΣΕΙΣ ΣΤΑΘΜΕΥΣΗΣ ΛΕΩΦΟΡΕΙΩΝ	[62, 1799, 119, 1803]
svg-text:ΟΣΩΝ ΟΡΙΖΟΝΤΑΙ ΣΤΑ ΑΡΘΡΑ 1(ΠΑΡ: ΟΣΩΝ ΟΡΙΖΟΝΤΑΙ ΣΤΑ ΑΡΘΡΑ 1(ΠΑΡ. 2&3) ΚΑΙ…	[1122, 642, 1321, 646]
svg-text:ΜΕΛΕΤΗΤΕΣ:: ΜΕΛΕΤΗΤΕΣ:	[862, 393, 879, 395]
svg-text:ΥΠΑΙΘΡΙΟΙ ΧΩΡΟΙ: ΥΠΑΙΘΡΙΟΙ ΧΩΡΟΙ	[1381, 771, 1415, 775]
svg-text:ΠΑΙΔΙΚΗ ΑΝΑΨΥΧΗ: ΠΑΙΔΙΚΗ ΑΝΑΨΥΧΗ	[1693, 850, 1723, 854]
svg-text:ΥΠΑΙΘΡΙΟΙ ΧΩΡΟΙ: ΥΠΑΙΘΡΙΟΙ ΧΩΡΟΙ	[1370, 1633, 1403, 1637]
svg-text:Α/Α/ ΣΧΕΔΙΟΥ:: Α/Α/ ΣΧΕΔΙΟΥ:	[1117, 1665, 1138, 1668]
svg-text:0,00: 0,00	[1475, 405, 1482, 409]
svg-text:ΘΕΩΡΗΣΗ:: ΘΕΩΡΗΣΗ:	[899, 509, 912, 512]
svg-text:ΚΥΚΛΟΦΟΡΙΑ ΚΟΙΝΟΥ: ΚΥΚΛΟΦΟΡΙΑ ΚΟΙΝΟΥ	[53, 1541, 93, 1545]
svg-text:0: 0	[182, 969, 184, 973]
svg-text:ΧΡΗΣΕΙΣ:: ΧΡΗΣΕΙΣ:	[84, 1261, 100, 1265]
svg-text:4209449,42: 4209449,42	[112, 532, 125, 535]
svg-text:0,00: 0,00	[1550, 395, 1556, 399]
svg-text:0,00: 0,00	[1481, 1316, 1488, 1320]
svg-text:ΣΗΜ.:: ΣΗΜ.:	[1117, 1888, 1127, 1892]
svg-text:ΤΑΙΠΕΔ: ΤΑΙΠΕΔ	[1173, 1524, 1201, 1533]
svg-text:& Διαχειριστική Εταιρεία: & Διαχειριστική Εταιρεία	[1178, 1355, 1208, 1359]
svg-text:ΠΑΙΔΙΚΗ ΑΝΑΨΥΧΗ - ΓΥΜΝΑΣΤΗΡΙΟ: ΠΑΙΔΙΚΗ ΑΝΑΨΥΧΗ - ΓΥΜΝΑΣΤΗΡΙΟ	[768, 176, 816, 180]
svg-text:του Υπουργείου Περιβάλλοντος: του Υπουργείου Περιβάλλοντος	[1266, 939, 1319, 943]
svg-text:ΥΠΟΓΕΙΑ:ΣΤΑΘΜΕΥΣΗ - ΒΟΗΘΗΤΙΚΟΙ: ΥΠΟΓΕΙΑ:ΣΤΑΘΜΕΥΣΗ - ΒΟΗΘΗΤΙΚΟΙ ΧΩΡΟΙ	[1400, 401, 1466, 404]
svg-text:8: 8	[54, 406, 56, 408]
